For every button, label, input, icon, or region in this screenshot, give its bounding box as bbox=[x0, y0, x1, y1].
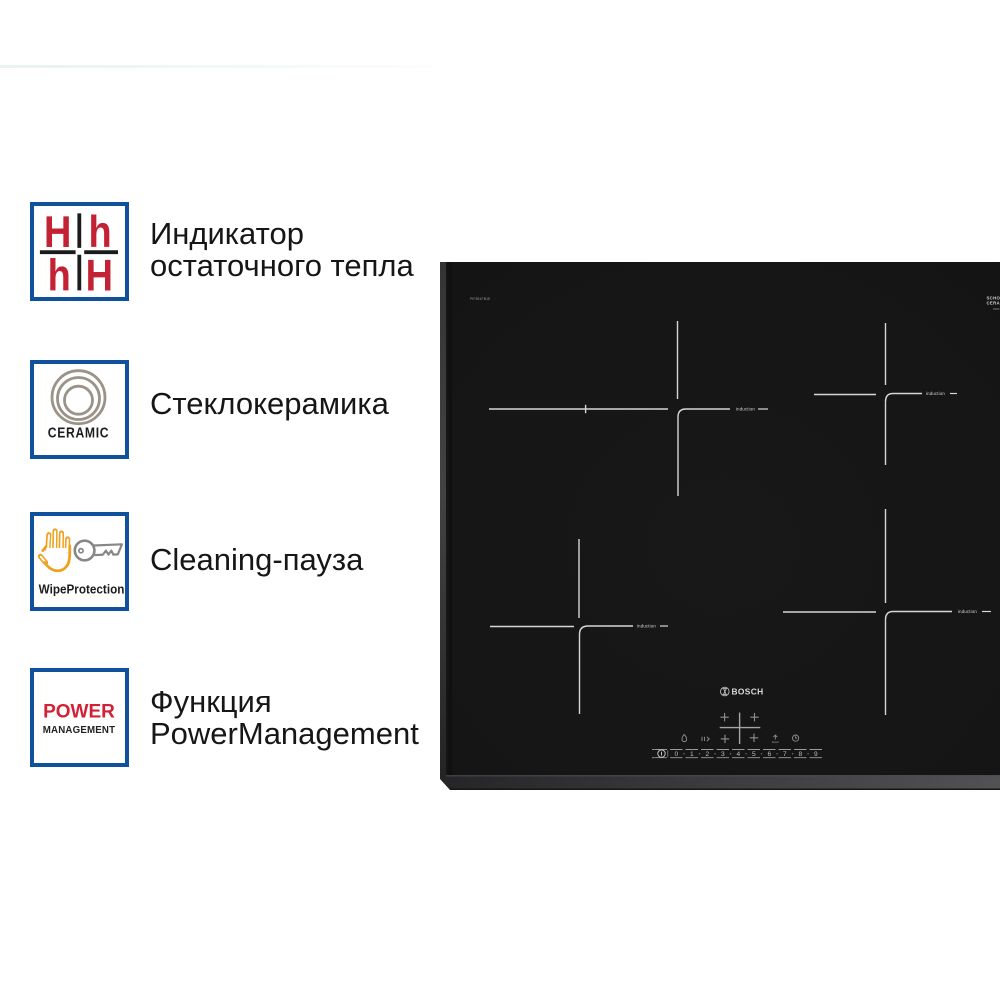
svg-text:2: 2 bbox=[705, 751, 709, 758]
svg-text:h: h bbox=[89, 207, 112, 257]
svg-text:3: 3 bbox=[721, 751, 725, 758]
svg-text:CERAN: CERAN bbox=[987, 301, 1000, 306]
svg-text:induction: induction bbox=[958, 609, 977, 614]
svg-text:6: 6 bbox=[767, 751, 771, 758]
svg-text:boost: boost bbox=[772, 740, 779, 744]
svg-text:9: 9 bbox=[814, 751, 818, 758]
svg-text:induction: induction bbox=[637, 624, 656, 629]
svg-text:H: H bbox=[86, 250, 113, 297]
svg-text:MANAGEMENT: MANAGEMENT bbox=[43, 725, 116, 736]
svg-text:0: 0 bbox=[674, 751, 678, 758]
svg-text:4: 4 bbox=[736, 751, 740, 758]
svg-text:8: 8 bbox=[798, 751, 802, 758]
svg-text:7: 7 bbox=[783, 751, 787, 758]
svg-text:1: 1 bbox=[690, 751, 694, 758]
svg-text:h: h bbox=[48, 250, 71, 297]
svg-text:5: 5 bbox=[752, 751, 756, 758]
svg-text:POWER: POWER bbox=[43, 702, 115, 723]
svg-text:WipeProtection: WipeProtection bbox=[39, 582, 125, 596]
svg-text:H: H bbox=[44, 207, 71, 257]
svg-text:induction: induction bbox=[926, 391, 945, 396]
svg-text:induction: induction bbox=[736, 407, 755, 412]
svg-text:BOSCH: BOSCH bbox=[732, 687, 764, 697]
svg-text:PIF651FB1E: PIF651FB1E bbox=[470, 297, 491, 301]
svg-text:CERAMIC: CERAMIC bbox=[48, 425, 109, 441]
